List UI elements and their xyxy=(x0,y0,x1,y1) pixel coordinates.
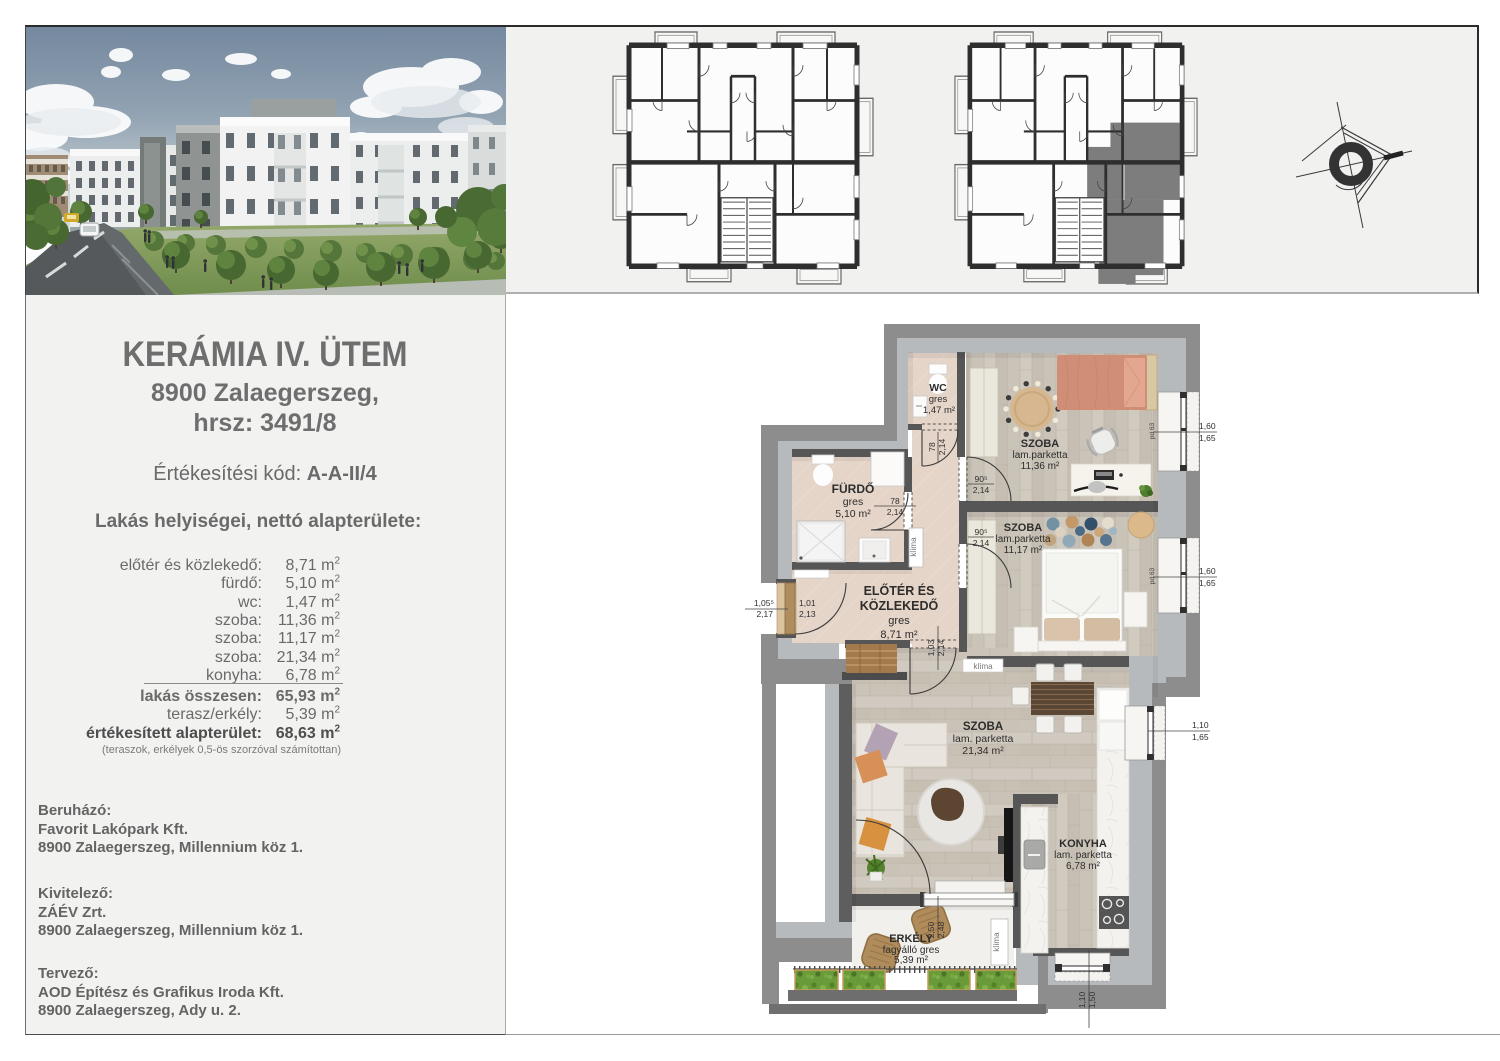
svg-text:1,47 m²: 1,47 m² xyxy=(923,405,955,416)
svg-text:1,60: 1,60 xyxy=(1199,566,1216,576)
svg-text:78: 78 xyxy=(890,496,900,506)
svg-text:1,65: 1,65 xyxy=(1199,578,1216,588)
svg-text:2,13: 2,13 xyxy=(799,609,816,619)
svg-text:KÖZLEKEDŐ: KÖZLEKEDŐ xyxy=(860,598,939,613)
svg-text:klíma: klíma xyxy=(909,537,918,557)
svg-text:11,36 m²: 11,36 m² xyxy=(1021,461,1060,472)
svg-text:2,48: 2,48 xyxy=(936,921,946,938)
svg-text:2,14: 2,14 xyxy=(936,639,946,656)
svg-text:gres: gres xyxy=(929,394,948,405)
svg-text:90⁵: 90⁵ xyxy=(975,527,988,537)
svg-text:1,10: 1,10 xyxy=(1077,991,1087,1008)
svg-text:1,60: 1,60 xyxy=(1199,421,1216,431)
svg-text:pd 63: pd 63 xyxy=(1149,422,1156,439)
svg-text:1,65: 1,65 xyxy=(1199,433,1216,443)
svg-text:5,39 m²: 5,39 m² xyxy=(894,955,929,966)
svg-text:pd 63: pd 63 xyxy=(1149,567,1156,584)
svg-text:SZOBA: SZOBA xyxy=(1004,522,1043,534)
svg-text:21,34 m²: 21,34 m² xyxy=(962,745,1004,757)
svg-text:lam. parketta: lam. parketta xyxy=(1054,850,1112,861)
svg-text:SZOBA: SZOBA xyxy=(1021,438,1060,450)
svg-text:6,78 m²: 6,78 m² xyxy=(1066,861,1101,872)
svg-text:klíma: klíma xyxy=(992,932,1001,952)
svg-text:1,01: 1,01 xyxy=(799,598,816,608)
svg-text:ERKÉLY: ERKÉLY xyxy=(889,932,933,945)
svg-text:1,65: 1,65 xyxy=(1192,732,1209,742)
svg-text:lam. parketta: lam. parketta xyxy=(953,733,1014,745)
svg-text:11,17 m²: 11,17 m² xyxy=(1004,545,1043,556)
svg-text:2,14: 2,14 xyxy=(887,507,904,517)
svg-text:2,14: 2,14 xyxy=(973,538,990,548)
svg-text:5,10 m²: 5,10 m² xyxy=(835,508,871,520)
svg-text:WC: WC xyxy=(929,382,947,394)
svg-text:gres: gres xyxy=(843,496,863,508)
svg-text:1,10: 1,10 xyxy=(1192,720,1209,730)
svg-text:90⁵: 90⁵ xyxy=(975,474,988,484)
svg-text:1,05⁵: 1,05⁵ xyxy=(754,598,774,608)
svg-text:78: 78 xyxy=(927,442,937,452)
svg-text:1,03: 1,03 xyxy=(926,639,936,656)
svg-text:lam.parketta: lam.parketta xyxy=(1012,450,1067,461)
svg-text:SZOBA: SZOBA xyxy=(963,721,1003,733)
svg-text:2,17: 2,17 xyxy=(756,609,773,619)
svg-text:lam.parketta: lam.parketta xyxy=(995,534,1050,545)
svg-text:KONYHA: KONYHA xyxy=(1059,838,1107,850)
svg-text:2,14: 2,14 xyxy=(937,438,947,455)
svg-text:gres: gres xyxy=(888,615,910,627)
svg-text:8,71 m²: 8,71 m² xyxy=(880,629,918,641)
svg-text:klíma: klíma xyxy=(973,662,993,671)
svg-text:ELŐTÉR ÉS: ELŐTÉR ÉS xyxy=(864,583,935,598)
svg-text:2,14: 2,14 xyxy=(973,485,990,495)
svg-text:FÜRDŐ: FÜRDŐ xyxy=(832,481,875,496)
svg-text:1,50: 1,50 xyxy=(1087,991,1097,1008)
